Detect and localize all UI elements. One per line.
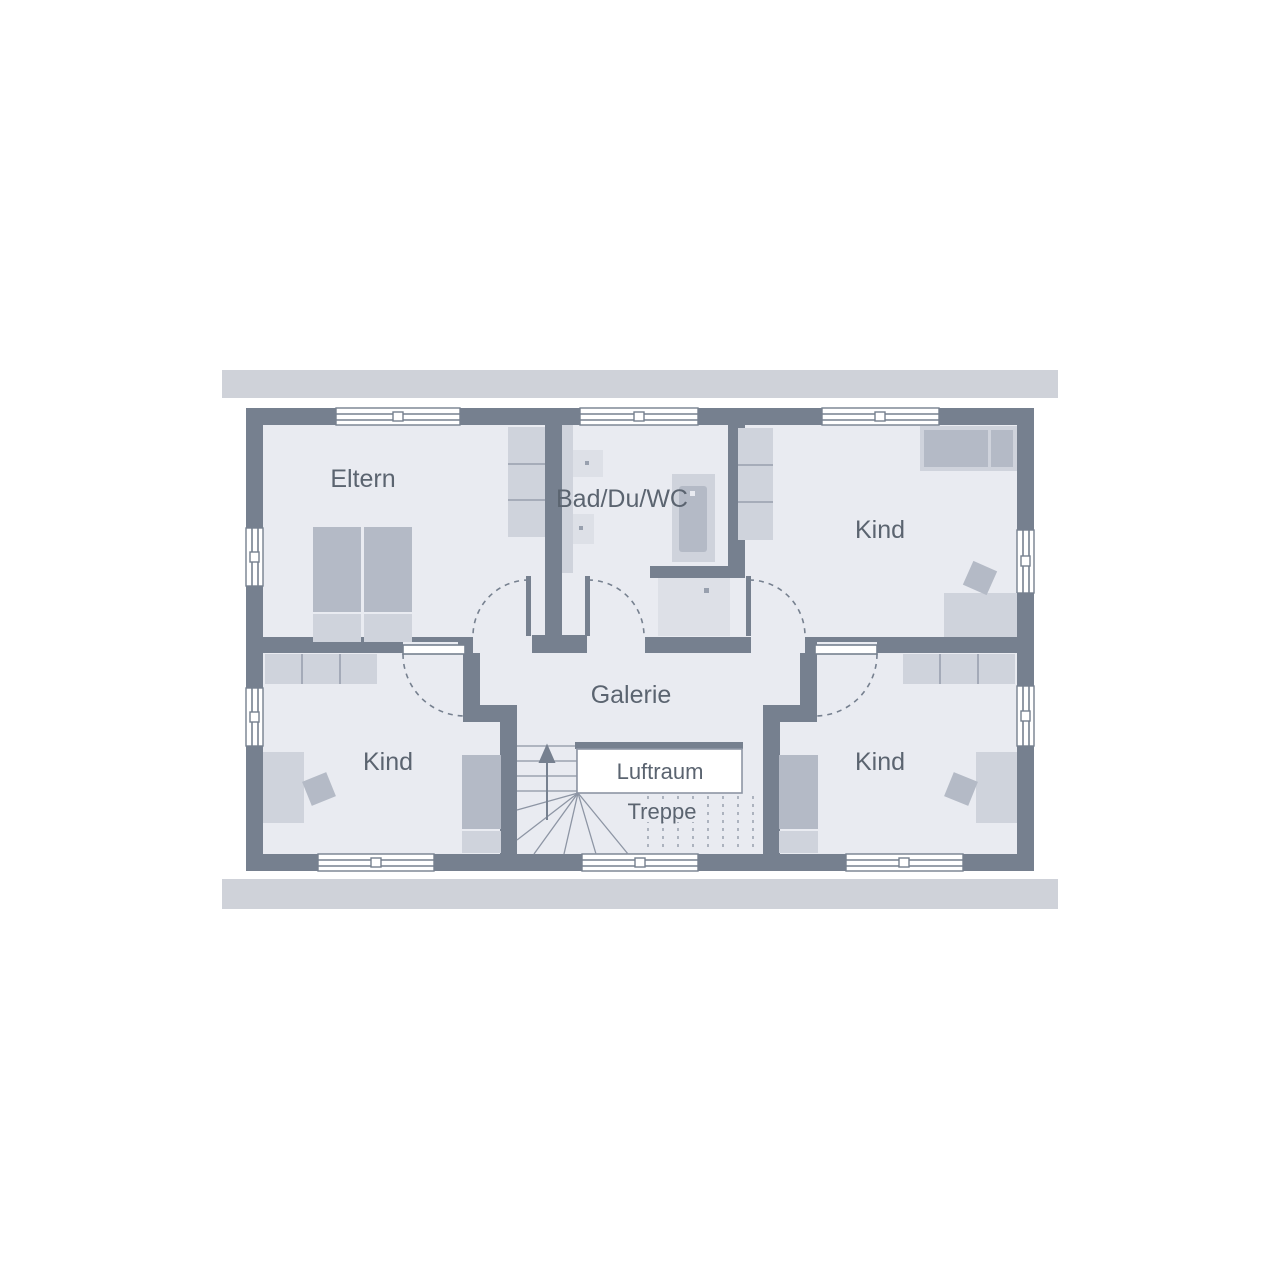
bed-icon xyxy=(462,755,501,853)
window xyxy=(846,854,963,871)
room-label-galerie: Galerie xyxy=(591,681,672,709)
room-label-bath: Bad/Du/WC xyxy=(556,485,688,513)
window xyxy=(1017,530,1034,593)
floorplan-svg: Eltern Bad/Du/WC Kind Kind Kind Galerie … xyxy=(0,0,1280,1280)
room-label-luftraum: Luftraum xyxy=(617,759,704,784)
wardrobe-icon xyxy=(265,654,377,684)
window xyxy=(1017,686,1034,746)
window xyxy=(582,854,698,871)
wardrobe-icon xyxy=(508,427,545,537)
washbasin-icon xyxy=(573,450,603,477)
window xyxy=(246,688,263,746)
room-label-eltern: Eltern xyxy=(330,465,395,493)
window xyxy=(336,408,460,425)
desk-icon xyxy=(263,752,304,823)
window xyxy=(246,528,263,586)
wardrobe-icon xyxy=(903,654,1015,684)
luftraum-edge xyxy=(575,742,743,749)
window xyxy=(318,854,434,871)
desk-icon xyxy=(944,593,1017,637)
window xyxy=(580,408,698,425)
roof-bar-bottom xyxy=(222,879,1058,909)
window xyxy=(822,408,939,425)
bed-icon xyxy=(779,755,818,853)
toilet-icon xyxy=(573,514,594,544)
wardrobe-icon xyxy=(738,428,773,540)
room-label-kind-tr: Kind xyxy=(855,516,905,544)
room-label-treppe: Treppe xyxy=(628,799,697,824)
room-label-kind-br: Kind xyxy=(855,748,905,776)
roof-bar-top xyxy=(222,370,1058,398)
desk-icon xyxy=(976,752,1017,823)
floorplan-page: Eltern Bad/Du/WC Kind Kind Kind Galerie … xyxy=(0,0,1280,1280)
shower-icon xyxy=(658,578,730,636)
bed-icon xyxy=(920,426,1017,471)
room-label-kind-bl: Kind xyxy=(363,748,413,776)
